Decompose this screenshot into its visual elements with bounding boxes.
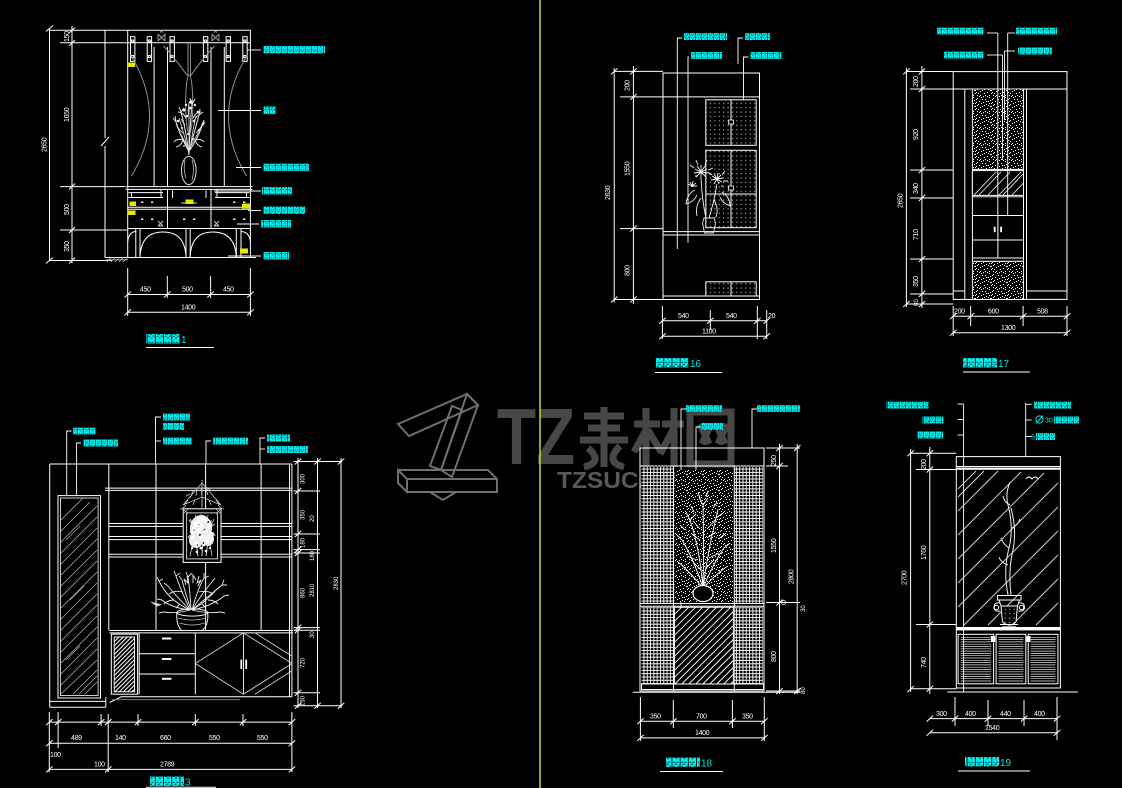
svg-text:1300: 1300	[1001, 325, 1016, 332]
svg-text:489: 489	[71, 735, 82, 742]
svg-text:540: 540	[678, 313, 689, 320]
svg-text:200: 200	[954, 308, 965, 315]
svg-text:1650: 1650	[64, 107, 71, 122]
svg-text:508: 508	[1037, 308, 1048, 315]
svg-text:710: 710	[913, 229, 920, 240]
svg-text:2830: 2830	[334, 576, 340, 590]
svg-text:2789: 2789	[160, 761, 175, 768]
svg-text:30: 30	[310, 631, 316, 638]
svg-text:500: 500	[64, 204, 71, 215]
svg-text:350: 350	[301, 509, 307, 520]
svg-text:180: 180	[310, 550, 316, 561]
svg-text:340: 340	[913, 183, 920, 194]
svg-text:19: 19	[1000, 758, 1012, 769]
svg-text:250: 250	[771, 455, 778, 466]
svg-text:20: 20	[310, 515, 316, 522]
svg-text:100: 100	[50, 752, 61, 759]
svg-text:200: 200	[921, 459, 928, 470]
svg-text:300: 300	[936, 711, 947, 718]
svg-text:400: 400	[965, 711, 976, 718]
svg-text:550: 550	[209, 735, 220, 742]
svg-text:30: 30	[1045, 418, 1053, 425]
svg-text:150: 150	[64, 31, 71, 42]
svg-text:860: 860	[301, 587, 307, 598]
svg-text:350: 350	[650, 713, 661, 720]
svg-text:920: 920	[913, 129, 920, 140]
svg-text:180: 180	[301, 537, 307, 548]
svg-text:350: 350	[742, 713, 753, 720]
svg-text:80: 80	[914, 299, 920, 306]
svg-text:17: 17	[998, 359, 1010, 370]
svg-text:2650: 2650	[898, 193, 905, 208]
svg-text:440: 440	[1000, 711, 1011, 718]
svg-text:140: 140	[115, 735, 126, 742]
svg-text:18: 18	[701, 759, 713, 770]
svg-text:30: 30	[801, 605, 807, 612]
svg-text:1760: 1760	[921, 545, 928, 560]
svg-text:200: 200	[913, 76, 920, 87]
svg-text:1400: 1400	[181, 305, 196, 312]
svg-text:450: 450	[223, 287, 234, 294]
svg-text:540: 540	[726, 313, 737, 320]
svg-text:200: 200	[625, 80, 632, 91]
svg-text:500: 500	[182, 287, 193, 294]
svg-text:1550: 1550	[625, 161, 632, 176]
svg-text:660: 660	[160, 735, 171, 742]
svg-text:1550: 1550	[771, 538, 778, 553]
svg-text:2650: 2650	[42, 137, 49, 152]
svg-text:300: 300	[301, 473, 307, 484]
svg-text:2800: 2800	[789, 569, 796, 584]
svg-text:80: 80	[801, 687, 807, 694]
svg-text:800: 800	[771, 651, 778, 662]
svg-text:350: 350	[64, 241, 71, 252]
svg-text:2700: 2700	[902, 570, 909, 585]
svg-text:700: 700	[696, 713, 707, 720]
svg-text:100: 100	[94, 761, 105, 768]
svg-text:2630: 2630	[605, 185, 612, 200]
svg-text:800: 800	[625, 265, 632, 276]
svg-text:600: 600	[988, 308, 999, 315]
svg-text:720: 720	[301, 657, 307, 668]
svg-text:550: 550	[257, 735, 268, 742]
svg-text:740: 740	[921, 657, 928, 668]
svg-text:1400: 1400	[695, 730, 710, 737]
svg-text:2810: 2810	[310, 583, 316, 597]
svg-text:1: 1	[181, 335, 187, 346]
svg-text:5: 5	[1031, 435, 1035, 442]
svg-text:400: 400	[1034, 711, 1045, 718]
svg-text:450: 450	[140, 287, 151, 294]
svg-text:16: 16	[690, 359, 702, 370]
svg-text:350: 350	[913, 276, 920, 287]
svg-text:20: 20	[768, 313, 776, 320]
svg-text:1100: 1100	[702, 329, 716, 336]
svg-text:150: 150	[301, 695, 307, 706]
svg-text:1540: 1540	[985, 725, 1000, 732]
svg-text:3: 3	[185, 778, 191, 788]
